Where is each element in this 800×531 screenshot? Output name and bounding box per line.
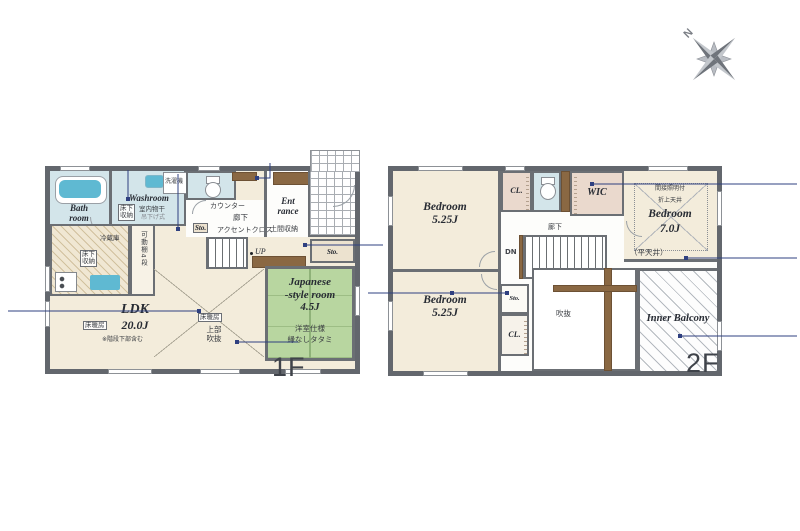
window <box>388 301 393 331</box>
label-bedroom-ne-size: 7.0J <box>634 223 706 236</box>
label-fridge: 冷蔵庫 <box>100 235 120 242</box>
label-bedroom-nw: Bedroom 5.25J <box>400 201 490 227</box>
room-toilet-2f <box>532 171 561 212</box>
label-corridor-1f: 廊下 <box>233 214 248 223</box>
floor-plan-2f: Bedroom 5.25J CL. WIC 間接照明付 折上天井 Bedro <box>388 166 722 376</box>
room-bedroom-sw: Bedroom 5.25J <box>393 272 501 371</box>
label-void-above: 上部 吹抜 <box>200 326 228 343</box>
bedroom-sw-door-arc <box>481 274 497 290</box>
label-laundry: 洗濯機 <box>164 179 184 186</box>
void-beam-horizontal <box>553 285 637 292</box>
washing-machine-icon: 洗濯機 <box>163 172 187 194</box>
bathtub-icon <box>55 176 107 204</box>
corridor-niche-shelf <box>232 172 257 181</box>
label-indirect-lighting: 間接照明付 <box>634 186 706 193</box>
room-kitchen: 冷蔵庫 床下 収納 <box>50 224 130 296</box>
label-flat-ceiling: （平天井） <box>630 249 668 258</box>
label-wic: WIC <box>572 187 622 199</box>
label-ldk-size: 20.0J <box>105 319 165 333</box>
label-movable-shelf: 可動棚4段 <box>139 231 146 266</box>
label-storage-2f: Sto. <box>502 295 527 302</box>
front-door-arc <box>333 185 355 207</box>
room-closet-bottom: CL. <box>500 314 529 356</box>
window <box>198 166 220 171</box>
sink-icon <box>145 175 164 188</box>
label-underfloor-storage-kitchen: 床下 収納 <box>80 250 97 267</box>
stairs-1f <box>206 237 248 269</box>
label-down: DN <box>505 248 517 256</box>
hanger-ticks <box>524 318 527 354</box>
window <box>717 321 722 351</box>
label-floor-heating-dining: 床暖房 <box>198 313 222 322</box>
stair-rail <box>519 235 523 279</box>
room-wic: WIC <box>570 171 624 216</box>
label-corridor-2f: 廊下 <box>548 223 562 231</box>
room-storage-2f: Sto. <box>500 284 529 314</box>
up-dot <box>250 252 253 255</box>
label-coved-ceiling: 折上天井 <box>634 198 706 205</box>
label-storage-corridor: Sto. <box>193 223 208 233</box>
entrance-porch <box>310 150 360 172</box>
window <box>108 369 152 374</box>
void-2f: 吹抜 <box>532 268 637 371</box>
room-storage-entrance: Sto. <box>310 239 355 263</box>
hanger-ticks <box>526 175 529 210</box>
room-toilet-1f <box>186 171 236 200</box>
label-up: UP <box>255 247 266 256</box>
label-japanese-note2: 縁なしタタミ <box>268 336 352 345</box>
void-beam-vertical <box>604 268 612 371</box>
window <box>423 371 468 376</box>
label-counter: カウンター <box>210 202 245 210</box>
label-japanese-note1: 洋室仕様 <box>268 325 352 334</box>
toilet-bowl-icon <box>540 183 556 200</box>
floor-plan-page: Bath room 洗濯機 Washroom 床下 収納 室内物干 吊下げ式 カ… <box>0 0 800 531</box>
label-void-2f: 吹抜 <box>556 310 571 319</box>
window <box>717 191 722 226</box>
bedroom-nw-door-arc <box>479 251 495 267</box>
floor-label-2f: 2F <box>686 348 720 379</box>
entrance-tile <box>308 171 355 237</box>
floor-plan-1f: Bath room 洗濯機 Washroom 床下 収納 室内物干 吊下げ式 カ… <box>45 166 360 374</box>
window <box>505 166 525 171</box>
label-entrance: Ent rance <box>268 196 308 217</box>
stove-icon <box>55 272 77 292</box>
window <box>200 369 240 374</box>
label-underfloor-storage-washroom: 床下 収納 <box>118 204 135 221</box>
washstand-counter <box>561 171 570 212</box>
label-storage-entrance: Sto. <box>312 248 353 256</box>
label-ldk: LDK <box>105 302 165 318</box>
compass-icon: N <box>676 18 752 94</box>
window <box>418 166 463 171</box>
wall-entrance <box>264 171 267 237</box>
label-bedroom-sw: Bedroom 5.25J <box>400 294 490 320</box>
window <box>45 266 50 292</box>
window <box>648 166 688 171</box>
window <box>388 196 393 226</box>
window <box>355 286 360 316</box>
hanger-ticks <box>574 175 577 214</box>
pantry-shelf: 可動棚4段 <box>130 224 155 296</box>
room-japanese: Japanese -style room 4.5J 洋室仕様 縁なしタタミ <box>265 266 355 361</box>
kitchen-sink-icon <box>90 275 120 290</box>
bathtub-water <box>59 180 101 198</box>
label-ldk-note: ※階段下部含む <box>102 337 143 344</box>
entrance-shelf <box>273 172 310 185</box>
window <box>45 301 50 327</box>
floor-label-1f: 1F <box>272 352 306 383</box>
bedroom-ne-door-arc <box>626 221 642 237</box>
room-closet-top: CL. <box>501 171 532 212</box>
label-floor-heating-ldk: 床暖房 <box>83 321 107 330</box>
label-hanging-type: 吊下げ式 <box>141 215 165 222</box>
label-washroom: Washroom <box>129 193 169 203</box>
label-indoor-drying: 室内物干 <box>139 206 165 213</box>
label-bedroom-ne: Bedroom <box>634 208 706 221</box>
label-doma-storage: 土間収納 <box>270 225 298 233</box>
room-bedroom-nw: Bedroom 5.25J <box>393 171 501 272</box>
window <box>60 166 90 171</box>
room-bedroom-ne: 間接照明付 折上天井 Bedroom 7.0J （平天井） <box>624 171 717 262</box>
label-inner-balcony: Inner Balcony <box>640 313 716 325</box>
toilet-bowl-icon <box>205 182 221 198</box>
label-japanese-room: Japanese -style room 4.5J <box>268 276 352 314</box>
